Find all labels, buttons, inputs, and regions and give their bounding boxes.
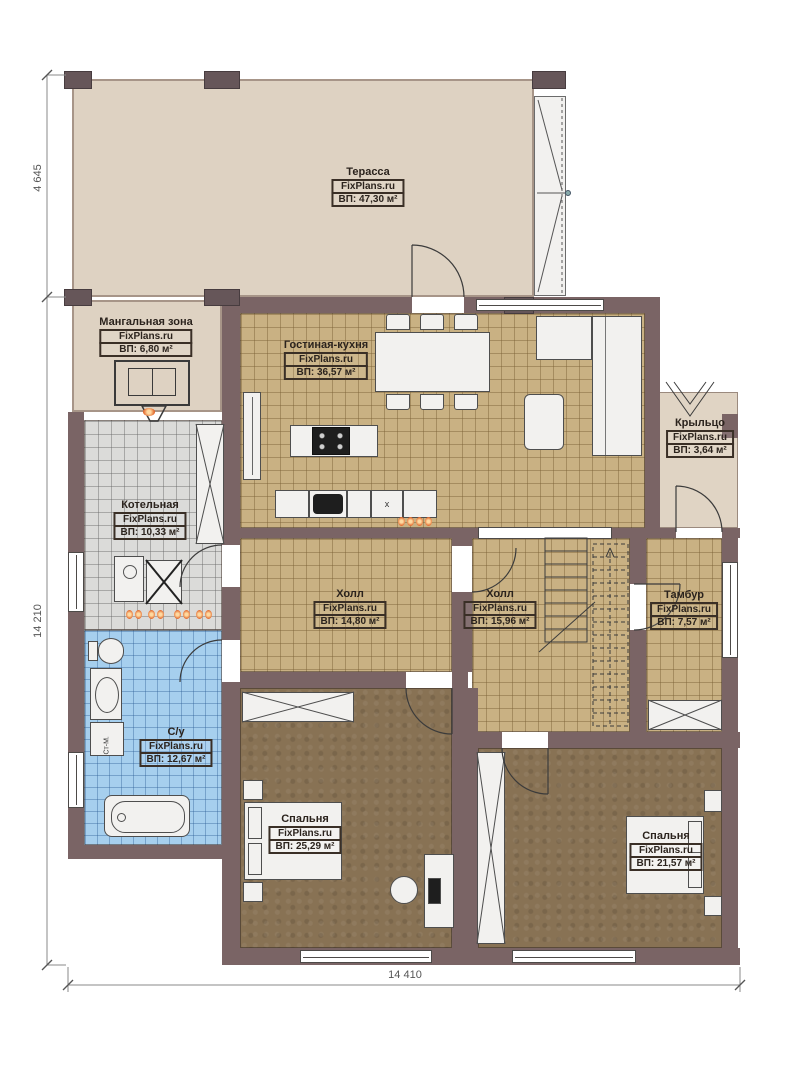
chair [454, 314, 478, 330]
room-area: ВП: 47,30 м² [331, 192, 404, 207]
room-area: ВП: 25,29 м² [268, 839, 341, 854]
column [64, 289, 92, 306]
room-label-living-kitchen: Гостиная-кухня FixPlans.ru ВП: 36,57 м² [284, 339, 368, 380]
window [512, 950, 636, 963]
brand-watermark: FixPlans.ru [650, 602, 718, 617]
sofa-chaise [536, 316, 592, 360]
brand-watermark: FixPlans.ru [666, 430, 734, 445]
dimension-left-main: 14 210 [32, 595, 44, 647]
window [722, 562, 738, 658]
window-line [515, 957, 633, 958]
dishwasher-label: x [385, 499, 390, 509]
window [300, 950, 432, 963]
door-opening [412, 297, 464, 313]
window [68, 552, 84, 612]
terrace-floor [72, 79, 534, 297]
hall-2-floor [472, 538, 630, 732]
room-label-bathroom: С/у FixPlans.ru ВП: 12,67 м² [139, 726, 212, 767]
room-label-bedroom-1: Спальня FixPlans.ru ВП: 25,29 м² [268, 813, 341, 854]
room-label-boiler-room: Котельная FixPlans.ru ВП: 10,33 м² [113, 499, 186, 540]
room-area: ВП: 15,96 м² [463, 614, 536, 629]
cabinet-line [252, 397, 253, 475]
room-name: Спальня [629, 830, 702, 842]
sconce-icon [148, 610, 164, 619]
room-name: Терасса [331, 166, 404, 178]
room-area: ВП: 14,80 м² [313, 614, 386, 629]
room-label-hall-1: Холл FixPlans.ru ВП: 14,80 м² [313, 588, 386, 629]
room-name: Тамбур [650, 589, 718, 601]
window [476, 299, 604, 311]
room-name: Холл [313, 588, 386, 600]
kitchen-sink-unit [309, 490, 347, 518]
washbasin [95, 677, 119, 713]
chair [454, 394, 478, 410]
brand-watermark: FixPlans.ru [331, 179, 404, 194]
wall [222, 297, 240, 965]
toilet-tank [88, 641, 98, 661]
room-label-bbq-zone: Мангальная зона FixPlans.ru ВП: 6,80 м² [99, 316, 192, 357]
room-name: Спальня [268, 813, 341, 825]
chair [420, 394, 444, 410]
window [68, 752, 84, 808]
room-label-bedroom-2: Спальня FixPlans.ru ВП: 21,57 м² [629, 830, 702, 871]
door-opening [630, 584, 646, 630]
dishwasher: x [371, 490, 403, 518]
room-label-tambour: Тамбур FixPlans.ru ВП: 7,57 м² [650, 589, 718, 630]
washing-machine: Ст-М. [90, 722, 124, 756]
chair [386, 314, 410, 330]
sconce-icon [398, 517, 414, 526]
column [64, 71, 92, 89]
door-opening [452, 546, 472, 592]
grill-line [152, 369, 153, 395]
sofa [592, 316, 642, 456]
terrace-side-steps [534, 96, 566, 296]
window-line [303, 957, 429, 958]
bbq-grill-inner [128, 368, 176, 396]
window-line [76, 755, 77, 805]
brand-watermark: FixPlans.ru [629, 843, 702, 858]
dining-table [375, 332, 490, 392]
nightstand [243, 882, 263, 902]
room-name: Мангальная зона [99, 316, 192, 328]
wall [645, 297, 660, 538]
kitchen-cabinet [403, 490, 437, 518]
bathtub [104, 795, 190, 837]
desk-chair [390, 876, 418, 904]
room-area: ВП: 10,33 м² [113, 525, 186, 540]
drain [117, 813, 126, 822]
dimension-left-top: 4 645 [32, 152, 44, 204]
brand-watermark: FixPlans.ru [463, 601, 536, 616]
boiler [146, 560, 182, 604]
floor-plan: x Ст-М. [0, 0, 792, 1080]
brand-watermark: FixPlans.ru [139, 739, 212, 754]
window-line [76, 555, 77, 609]
wardrobe [242, 692, 354, 722]
sink [313, 494, 343, 514]
sconce-icon [416, 517, 432, 526]
door-opening [222, 640, 240, 682]
wardrobe [477, 752, 505, 944]
room-area: ВП: 3,64 м² [666, 443, 734, 458]
room-name: Крыльцо [666, 417, 734, 429]
room-area: ВП: 12,67 м² [139, 752, 212, 767]
door-opening [406, 672, 452, 688]
room-area: ВП: 36,57 м² [284, 365, 368, 380]
dimension-bottom: 14 410 [360, 969, 450, 981]
chair [386, 394, 410, 410]
washing-machine-label: Ст-М. [104, 723, 111, 755]
chair [420, 314, 444, 330]
boiler-dial [123, 565, 137, 579]
window-line [730, 565, 731, 655]
vanity [90, 668, 122, 720]
stove [312, 427, 350, 455]
coffee-table [524, 394, 564, 450]
shoe-cabinet [648, 700, 722, 730]
sconce-icon [174, 610, 190, 619]
boiler-unit [114, 556, 144, 602]
room-name: Холл [463, 588, 536, 600]
sconce-icon [143, 408, 155, 416]
nightstand [704, 790, 722, 812]
pillow [248, 843, 262, 875]
door-opening [502, 732, 548, 748]
wall [630, 538, 646, 732]
room-name: Гостиная-кухня [284, 339, 368, 351]
wall [452, 688, 478, 965]
nightstand [243, 780, 263, 800]
column [204, 289, 240, 306]
nightstand [704, 896, 722, 916]
room-area: ВП: 6,80 м² [99, 342, 192, 357]
window-line [479, 305, 601, 306]
toilet [98, 638, 124, 664]
brand-watermark: FixPlans.ru [313, 601, 386, 616]
room-label-terrace: Терасса FixPlans.ru ВП: 47,30 м² [331, 166, 404, 207]
monitor [428, 878, 441, 904]
pillow [248, 807, 262, 839]
room-name: Котельная [113, 499, 186, 511]
column [532, 71, 566, 89]
wall [68, 845, 240, 859]
room-label-porch: Крыльцо FixPlans.ru ВП: 3,64 м² [666, 417, 734, 458]
kitchen-cabinet [347, 490, 371, 518]
room-area: ВП: 21,57 м² [629, 856, 702, 871]
sofa-back [593, 317, 606, 455]
column [204, 71, 240, 89]
pass-through-opening [478, 527, 612, 539]
room-label-hall-2: Холл FixPlans.ru ВП: 15,96 м² [463, 588, 536, 629]
room-area: ВП: 7,57 м² [650, 615, 718, 630]
porch-floor [658, 392, 738, 528]
tall-cabinet [243, 392, 261, 480]
door-opening [222, 545, 240, 587]
sconce-icon [126, 610, 142, 619]
vent-shaft [196, 424, 224, 544]
kitchen-cabinet [275, 490, 309, 518]
sconce-icon [196, 610, 212, 619]
brand-watermark: FixPlans.ru [113, 512, 186, 527]
room-name: С/у [139, 726, 212, 738]
brand-watermark: FixPlans.ru [268, 826, 341, 841]
door-opening [676, 528, 722, 538]
